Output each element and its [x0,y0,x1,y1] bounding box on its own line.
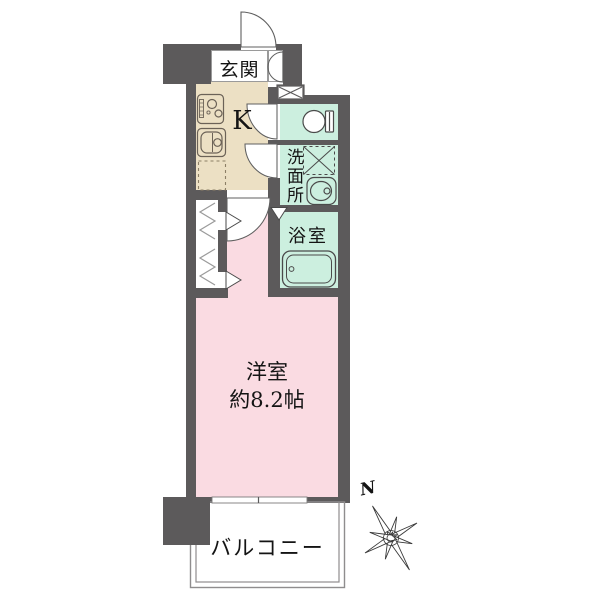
window-icon [212,497,307,503]
floorplan-canvas: 玄関 K 洗面所 浴室 洋室 約8.2帖 バルコニー N [0,0,600,600]
sink-icon [198,129,226,157]
entrance-door-arc-icon [241,12,276,47]
refrigerator-space-icon [199,161,226,190]
bathroom-door-mark-icon [271,208,287,221]
main-room-label: 洋室 約8.2帖 [196,358,338,415]
washbasin-icon [307,178,336,205]
washroom-label: 洗面所 [283,146,303,206]
kitchen-label: K [226,106,258,136]
hanger-pipe-icon [200,203,215,285]
main-room-size: 約8.2帖 [196,386,338,414]
bathroom-label: 浴室 [280,222,336,248]
genkan-label: 玄関 [211,55,268,82]
meter-box-icon [278,86,304,100]
compass-rose-icon [347,491,436,585]
main-room-name: 洋室 [196,358,338,386]
stove-icon [198,95,224,124]
bathtub-icon [283,251,336,287]
balcony-label: バルコニー [196,532,339,562]
toilet-icon [303,111,334,133]
washing-machine-space-icon [304,147,335,175]
shoe-cabinet-doors-icon [268,52,283,82]
floorplan-linework [0,0,600,600]
washroom-door-arc-icon [245,144,277,178]
